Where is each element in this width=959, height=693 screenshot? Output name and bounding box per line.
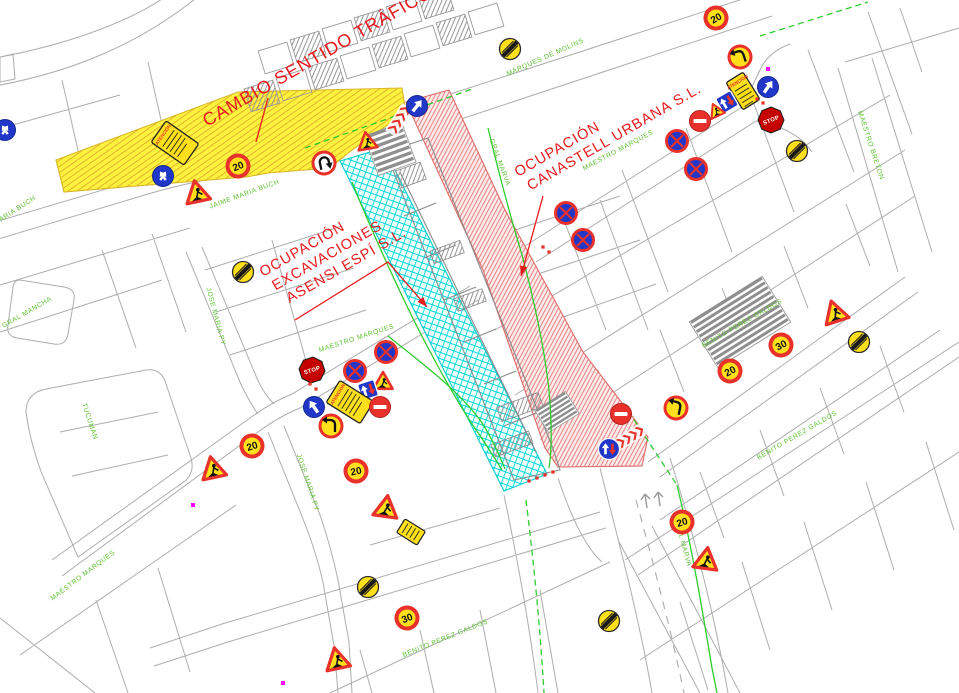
sign-no-parking (686, 159, 707, 180)
rounded-blocks (8, 280, 192, 557)
sign-works (323, 645, 351, 671)
red-dot (761, 101, 764, 104)
sign-end (787, 141, 808, 162)
sign-speed: 20 (344, 459, 369, 484)
red-dot (308, 382, 311, 385)
red-dot (314, 387, 317, 390)
sign-works (693, 546, 720, 570)
street-label: JOSE MARIA PY (295, 453, 320, 512)
sign-works (373, 494, 400, 518)
street-label: GRAL MANCHA (1, 296, 53, 330)
sign-end (849, 332, 870, 353)
building-block (372, 36, 408, 68)
street-label: BENITO PEREZ GALDOS (756, 410, 839, 462)
traffic-plan-map: MARIA BUCHJAIME MARIA BUCHMARQUES DE MOL… (0, 0, 959, 693)
sign-panel-small (397, 519, 426, 545)
sign-blue-two (153, 166, 174, 187)
sign-speed: 20 (239, 433, 265, 459)
sign-speed: 30 (393, 604, 420, 631)
sign-no-parking (667, 131, 688, 152)
magenta-dot (281, 681, 285, 685)
sign-no-parking (556, 203, 577, 224)
sign-speed: 20 (702, 4, 731, 33)
sign-blue-two (0, 120, 16, 141)
building-block (404, 25, 440, 57)
sign-no-entry (690, 111, 711, 132)
sign-no-parking (573, 230, 594, 251)
sign-end (599, 611, 620, 632)
sign-end (358, 577, 379, 598)
red-dot (527, 479, 530, 482)
red-dot (547, 250, 550, 253)
red-dot (535, 476, 538, 479)
sign-speed: 30 (767, 331, 795, 359)
sign-stop: STOP (297, 355, 327, 385)
red-dot (755, 97, 758, 100)
sign-no-parking (345, 361, 366, 382)
annotation-ocupacion-canastell: OCUPACIÓNCANASTELL URBANA S.L. (512, 64, 705, 276)
sign-end (500, 39, 521, 60)
building-block (340, 47, 376, 79)
street-label: TUCUMAN (80, 402, 98, 440)
street-label: JOSE MARIA PY (204, 287, 226, 346)
sign-no-parking (376, 342, 397, 363)
street-label: JAIME MARIA BUCH (209, 179, 281, 211)
magenta-dot (766, 67, 770, 71)
sign-stop: STOP (755, 104, 786, 135)
red-dot (541, 245, 544, 248)
sign-no-turn-y (320, 415, 342, 437)
red-dot (543, 473, 546, 476)
sign-priority-circle (599, 439, 620, 460)
magenta-dot (191, 503, 195, 507)
red-dot (551, 470, 554, 473)
sign-end (233, 262, 254, 283)
traffic-plan-page: MARIA BUCHJAIME MARIA BUCHMARQUES DE MOL… (0, 0, 959, 693)
sign-no-turn-y (663, 395, 689, 421)
building-block (468, 3, 504, 35)
sign-no-entry (611, 404, 632, 425)
building-block (436, 14, 472, 46)
sign-no-turn-y (726, 43, 754, 71)
sign-no-entry (370, 397, 391, 418)
